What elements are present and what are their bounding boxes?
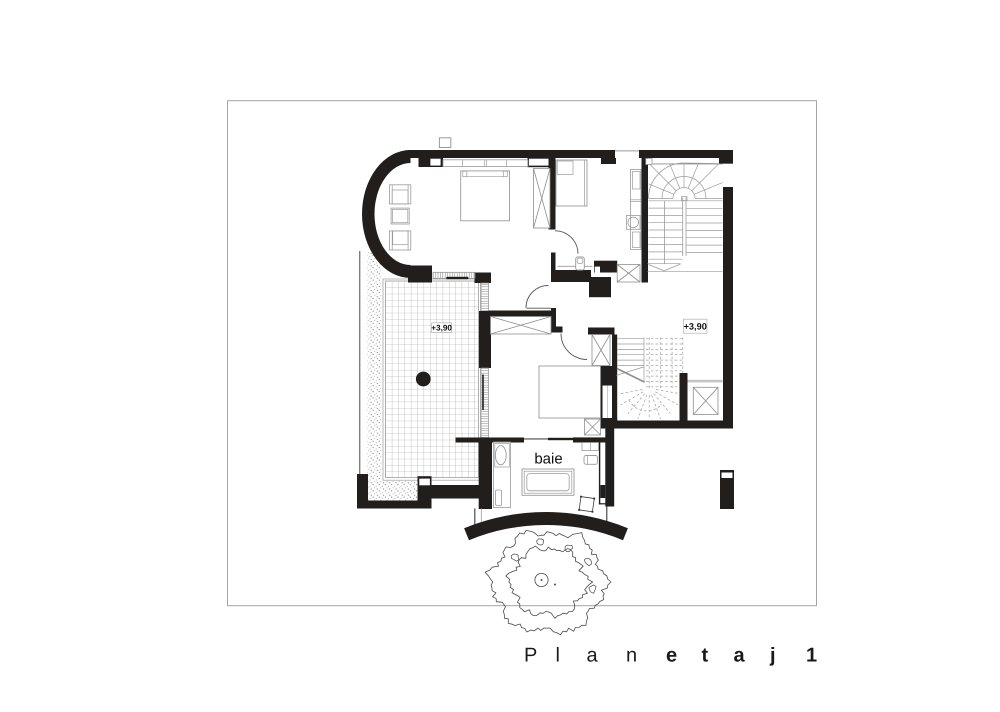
- svg-text:l: l: [556, 645, 560, 667]
- svg-text:+3,90: +3,90: [431, 323, 452, 332]
- svg-text:+3,90: +3,90: [684, 322, 707, 332]
- svg-text:a: a: [734, 645, 746, 667]
- svg-text:t: t: [702, 645, 709, 667]
- svg-text:1: 1: [806, 645, 817, 667]
- svg-text:e: e: [666, 645, 677, 667]
- svg-text:P: P: [524, 645, 537, 667]
- svg-text:j: j: [769, 645, 776, 667]
- svg-text:baie: baie: [534, 451, 562, 468]
- svg-text:a: a: [587, 645, 599, 667]
- svg-text:n: n: [626, 645, 637, 667]
